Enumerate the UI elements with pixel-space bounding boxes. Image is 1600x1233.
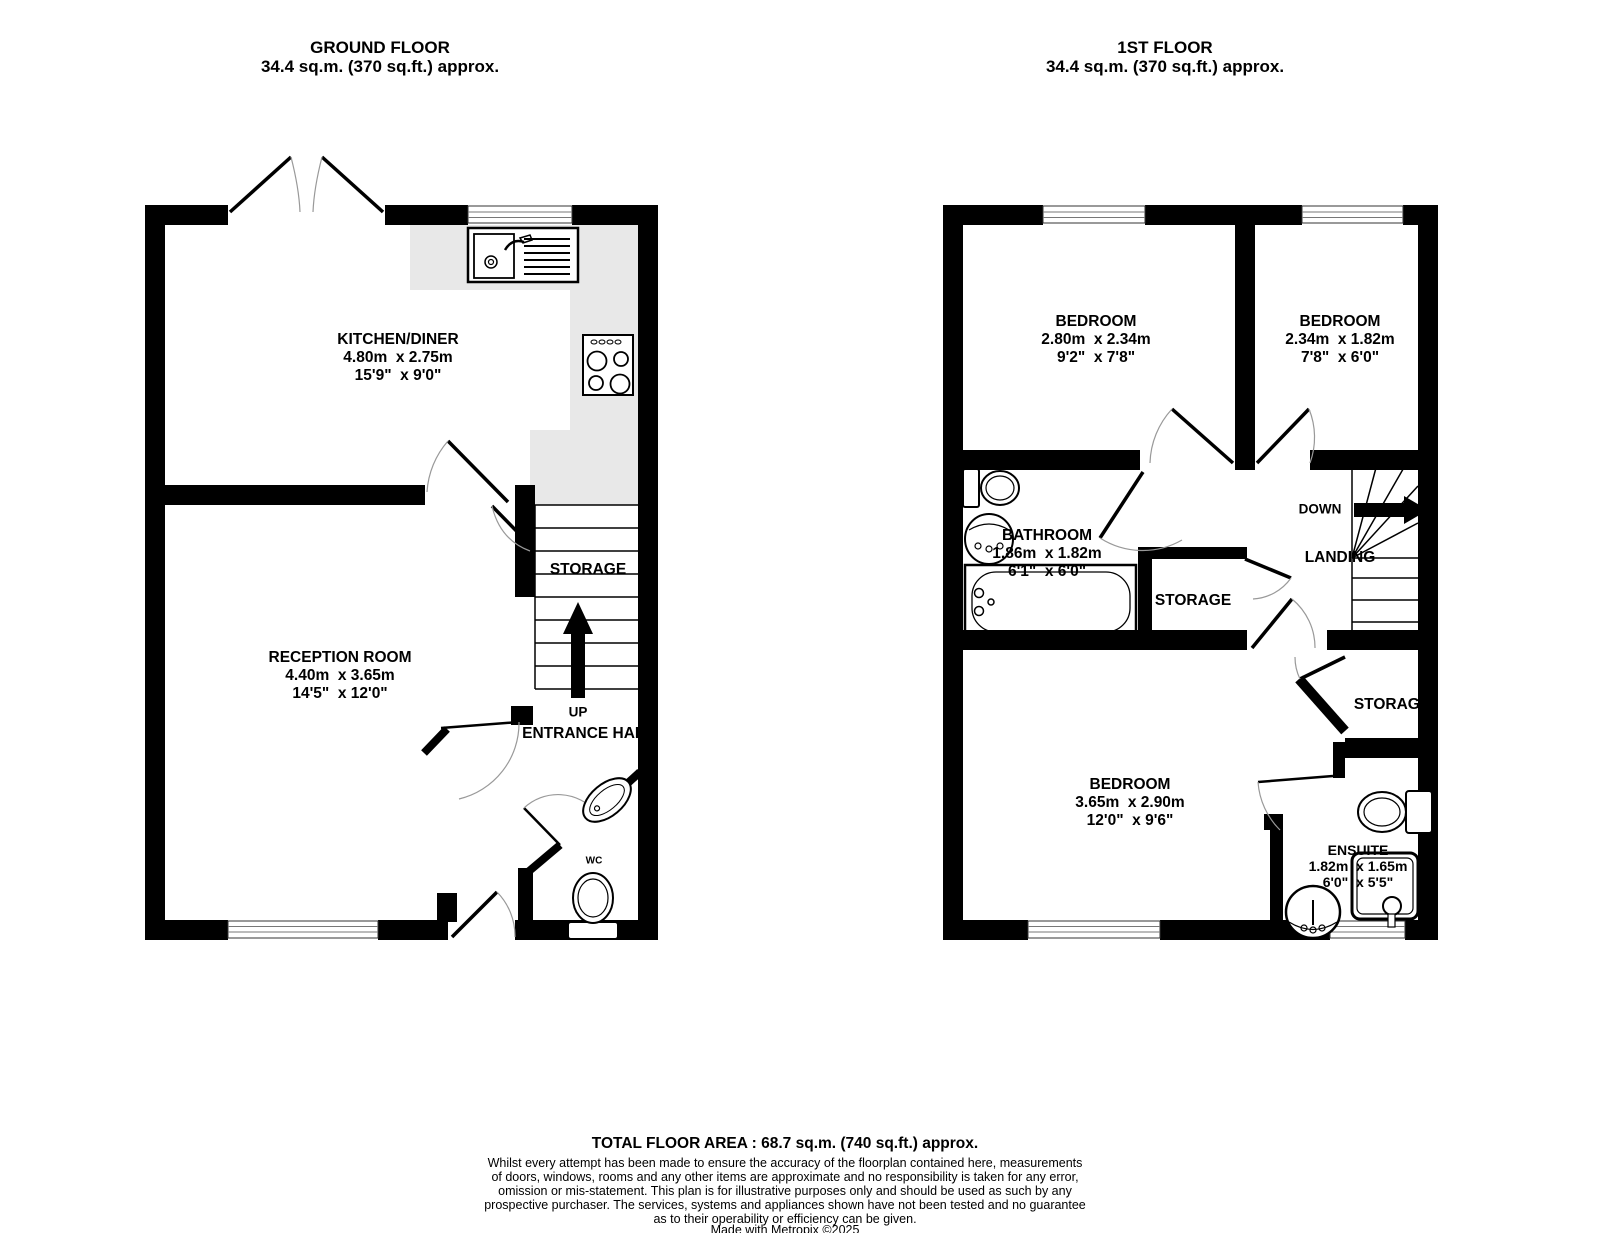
bath-fixture	[965, 565, 1136, 638]
ground-floor-plan	[130, 140, 690, 970]
hob-fixture	[583, 335, 633, 395]
total-floor-area: TOTAL FLOOR AREA : 68.7 sq.m. (740 sq.ft…	[592, 1135, 978, 1153]
wc-toilet-fixture	[568, 873, 618, 939]
first-floor-title: 1ST FLOOR	[1117, 38, 1212, 58]
bathroom-toilet-fixture	[963, 469, 1019, 507]
metropix-credit: Made with Metropix ©2025	[711, 1223, 860, 1233]
disclaimer-line: Whilst every attempt has been made to en…	[488, 1156, 1083, 1170]
first-floor-plan	[930, 140, 1470, 970]
disclaimer-line: of doors, windows, rooms and any other i…	[491, 1170, 1078, 1184]
ensuite-basin-fixture	[1286, 886, 1340, 938]
disclaimer-line: prospective purchaser. The services, sys…	[484, 1198, 1086, 1212]
first-floor-area: 34.4 sq.m. (370 sq.ft.) approx.	[1046, 57, 1284, 77]
ground-floor-area: 34.4 sq.m. (370 sq.ft.) approx.	[261, 57, 499, 77]
ensuite-toilet-fixture	[1358, 791, 1432, 833]
disclaimer-line: omission or mis-statement. This plan is …	[498, 1184, 1072, 1198]
bathroom-basin-fixture	[965, 514, 1013, 564]
gf-stairs	[535, 505, 638, 698]
ground-floor-title: GROUND FLOOR	[310, 38, 450, 58]
floorplan-page: GROUND FLOOR 34.4 sq.m. (370 sq.ft.) app…	[0, 0, 1600, 1233]
shower-fixture	[1352, 853, 1418, 927]
down-arrow-icon	[1354, 496, 1428, 524]
up-arrow-icon	[563, 602, 593, 698]
ff-stairs	[1352, 464, 1428, 640]
kitchen-sink-fixture	[468, 228, 578, 282]
